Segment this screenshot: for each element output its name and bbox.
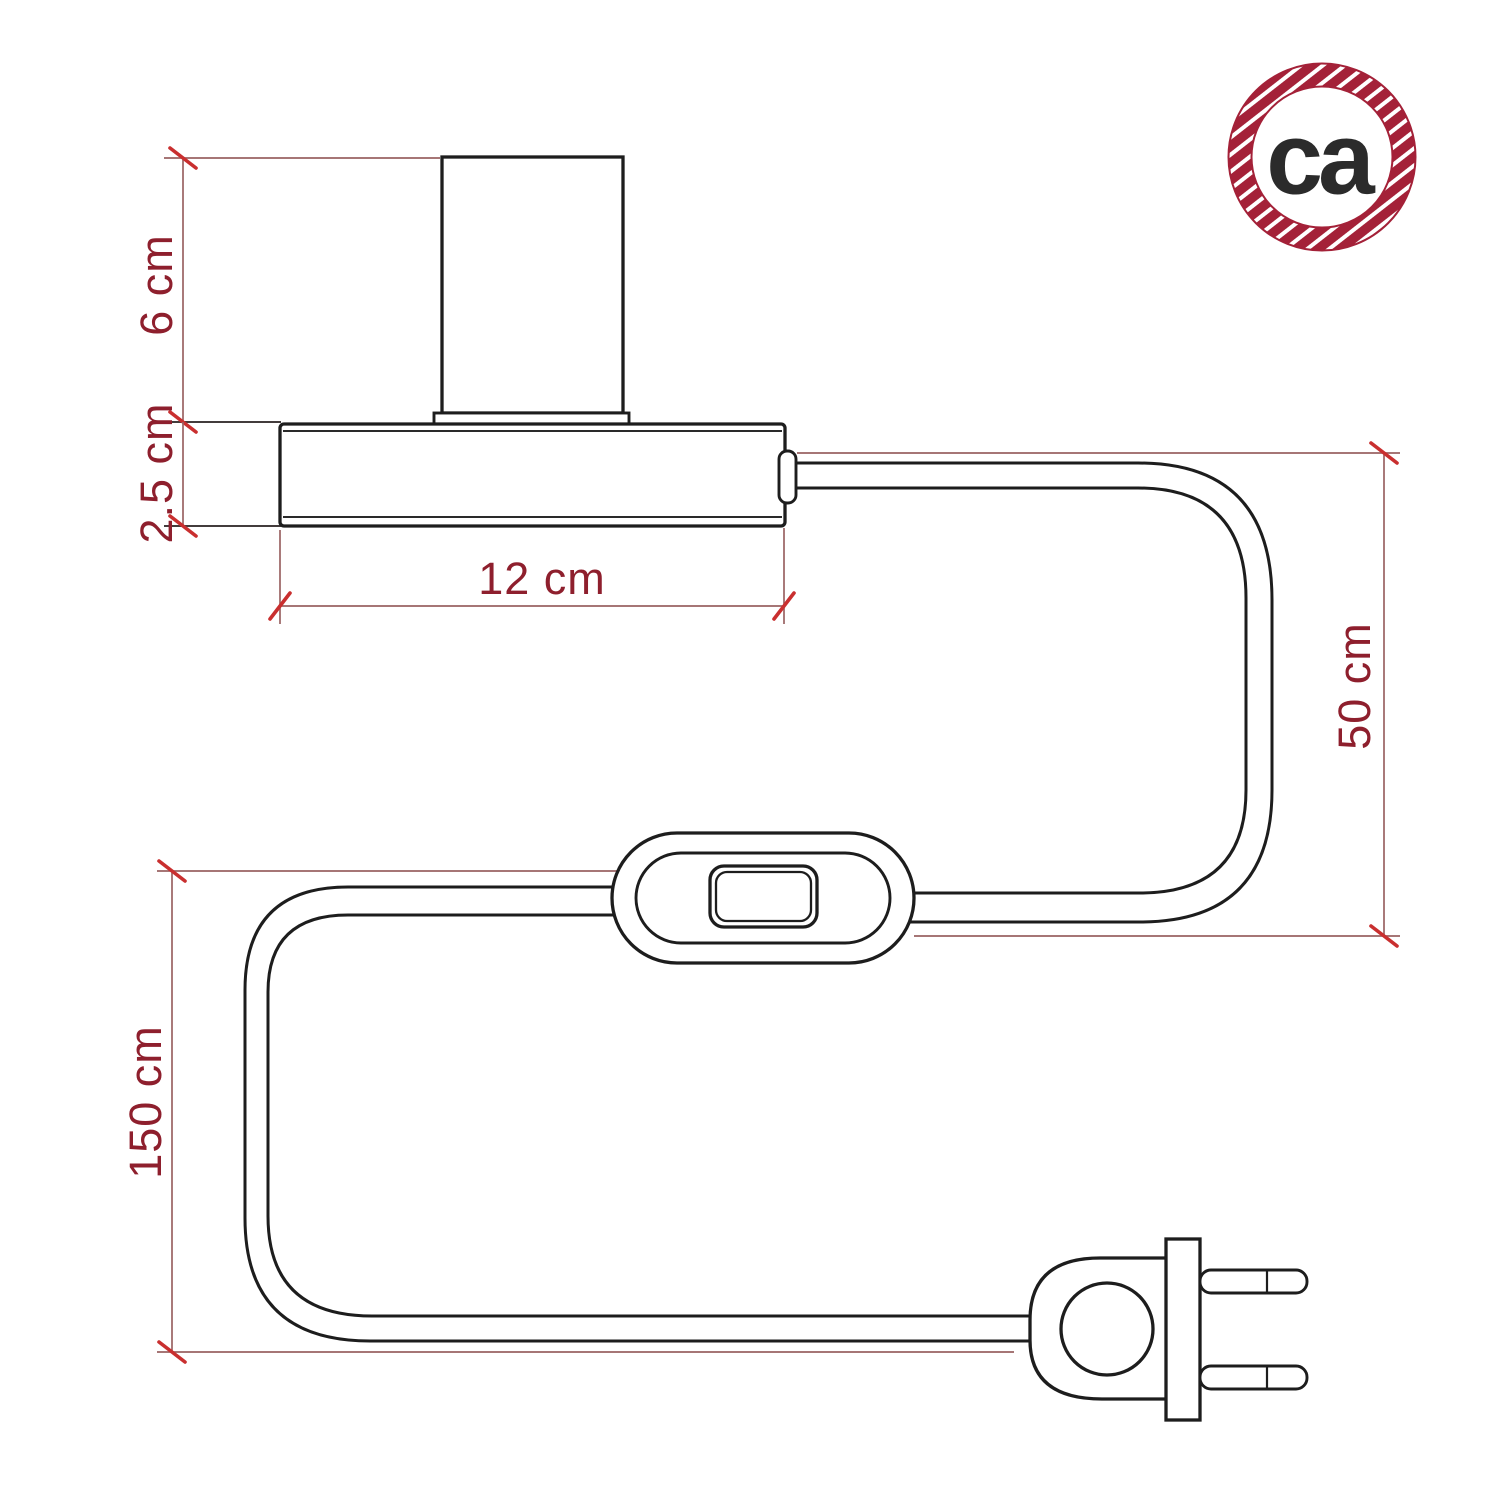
plug-cord-grip-circle bbox=[1061, 1283, 1153, 1375]
cable-exit-connector bbox=[779, 451, 796, 503]
dimension-label-socket-height: 6 cm bbox=[131, 234, 182, 336]
diagram-canvas: 6 cm 2.5 cm 12 cm 50 cm 150 cm bbox=[0, 0, 1500, 1500]
dimension-base-height: 2.5 cm bbox=[131, 402, 281, 543]
cable-upper-run-inner bbox=[796, 488, 1246, 893]
dimension-label-base-width: 12 cm bbox=[478, 553, 606, 604]
brand-logo: ca bbox=[1227, 62, 1417, 252]
lamp-socket bbox=[442, 157, 623, 413]
dimension-label-base-height: 2.5 cm bbox=[131, 402, 182, 543]
plug-face-plate bbox=[1166, 1239, 1200, 1420]
lamp-dimension-diagram: 6 cm 2.5 cm 12 cm 50 cm 150 cm bbox=[0, 0, 1500, 1500]
plug-pin-top bbox=[1200, 1270, 1307, 1293]
lamp-base bbox=[280, 424, 785, 526]
power-plug bbox=[1030, 1239, 1307, 1420]
logo-monogram: ca bbox=[1266, 102, 1376, 216]
cable-lower-run-inner bbox=[268, 915, 1098, 1316]
dimension-base-width: 12 cm bbox=[270, 528, 794, 624]
switch-button bbox=[710, 866, 817, 927]
inline-switch bbox=[612, 833, 914, 963]
dimension-label-total-cable: 150 cm bbox=[120, 1025, 171, 1179]
dimension-socket-height: 6 cm bbox=[131, 148, 440, 432]
table-lamp bbox=[280, 157, 796, 526]
plug-pin-bottom bbox=[1200, 1366, 1307, 1389]
dimension-label-lamp-to-switch: 50 cm bbox=[1329, 622, 1380, 750]
